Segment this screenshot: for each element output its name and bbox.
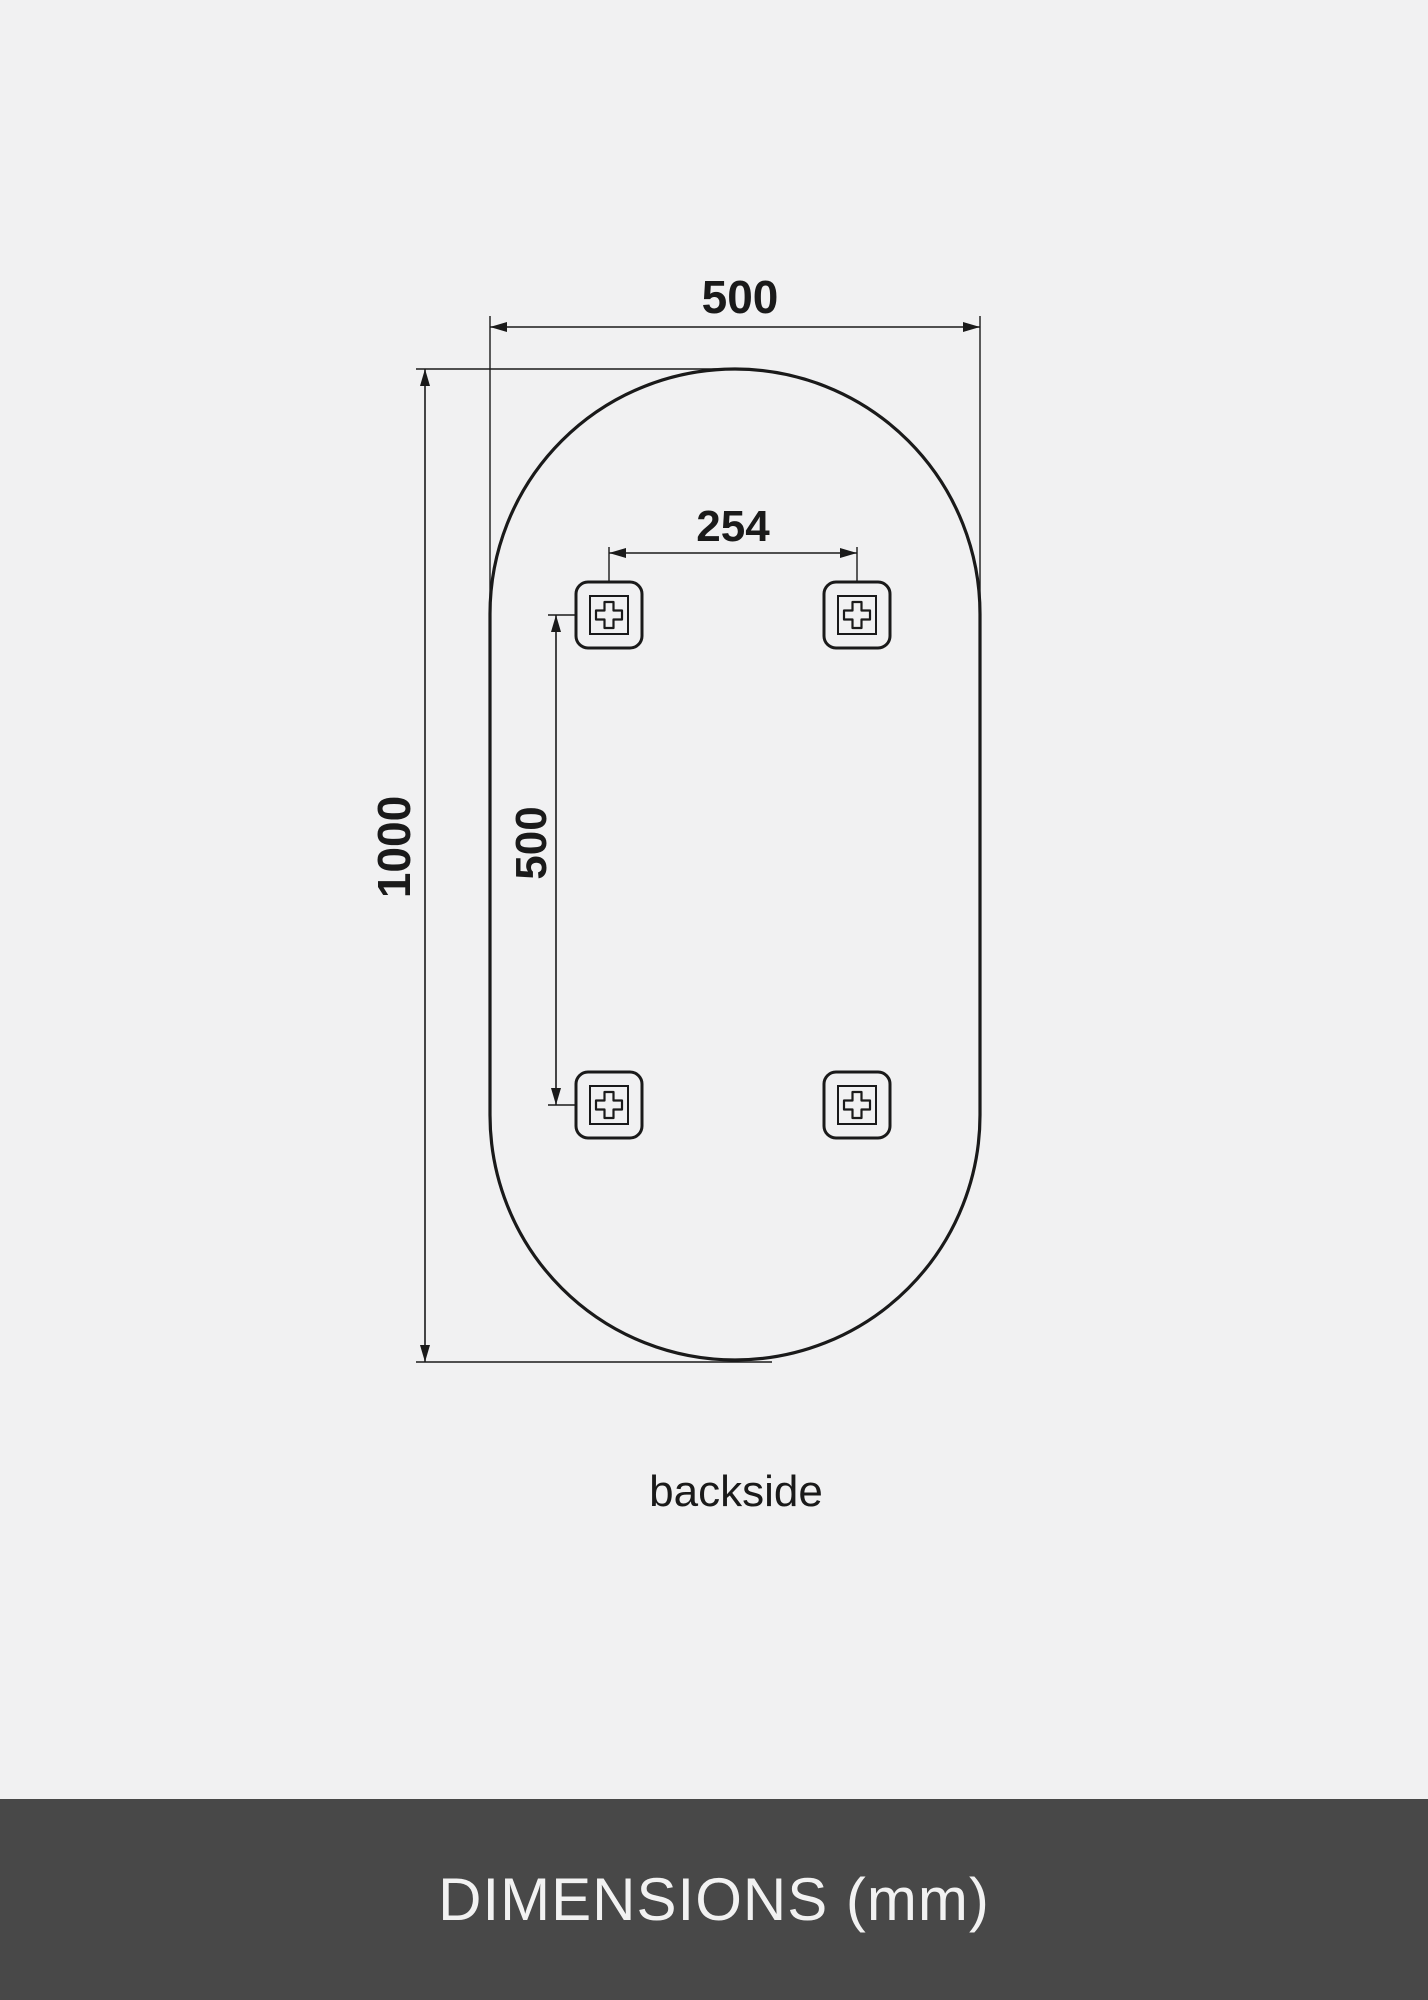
height-dimension-label: 1000 bbox=[368, 796, 420, 898]
width-dimension-label: 500 bbox=[702, 271, 779, 323]
spacing-v-dimension-label: 500 bbox=[507, 806, 556, 879]
dimension-sheet: 500 1000 254 500 bbox=[0, 0, 1428, 2000]
bracket-outer-plate bbox=[824, 582, 890, 648]
spacing-h-dimension-label: 254 bbox=[696, 502, 770, 551]
footer-bar: DIMENSIONS (mm) bbox=[0, 1799, 1428, 2000]
mounting-bracket-bottom-right bbox=[824, 1072, 890, 1138]
footer-title: DIMENSIONS (mm) bbox=[438, 1865, 990, 1934]
bracket-spacing-vertical-dimension: 500 bbox=[507, 615, 576, 1105]
mounting-bracket-bottom-left bbox=[576, 1072, 642, 1138]
mounting-bracket-top-right bbox=[824, 582, 890, 648]
width-dimension: 500 bbox=[490, 271, 980, 618]
bracket-outer-plate bbox=[824, 1072, 890, 1138]
view-label: backside bbox=[649, 1467, 823, 1516]
bracket-spacing-horizontal-dimension: 254 bbox=[609, 502, 857, 581]
bracket-outer-plate bbox=[576, 1072, 642, 1138]
mirror-dimension-diagram: 500 1000 254 500 bbox=[0, 0, 1428, 1799]
bracket-outer-plate bbox=[576, 582, 642, 648]
mounting-bracket-top-left bbox=[576, 582, 642, 648]
